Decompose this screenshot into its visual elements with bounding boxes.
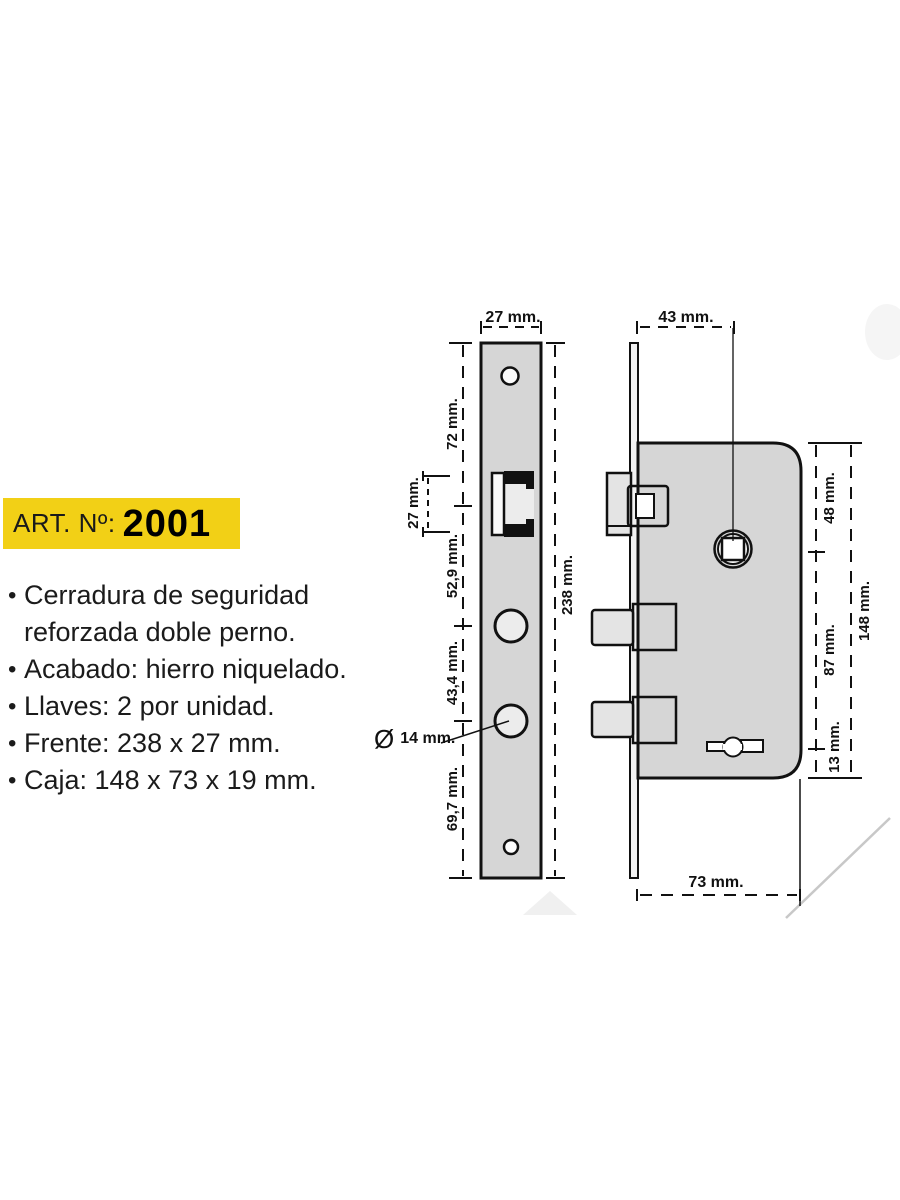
dim-label-front-height: 238 mm. xyxy=(559,555,576,615)
dim-label-latch-to-hole: 52,9 mm. xyxy=(444,534,461,598)
watermark-triangle xyxy=(523,891,577,915)
dim-label-keyhole-to-bottom: 13 mm. xyxy=(826,721,843,773)
product-spec-sheet: ART. Nº: 2001 • Cerradura de seguridad r… xyxy=(0,0,900,1200)
latch-front xyxy=(492,471,534,537)
keyhole-circle-lower xyxy=(495,705,527,737)
keyhole-circle-upper xyxy=(495,610,527,642)
dim-label-top-to-latch: 72 mm. xyxy=(444,398,461,450)
watermark-diagonal xyxy=(786,818,890,918)
dim-label-top-to-spindle: 48 mm. xyxy=(821,472,838,524)
dim-label-front-width: 27 mm. xyxy=(485,309,540,326)
dim-label-hole-to-hole: 43,4 mm. xyxy=(444,641,461,705)
dim-label-latch-height: 27 mm. xyxy=(405,477,422,529)
dim-label-spindle-to-keyhole: 87 mm. xyxy=(821,624,838,676)
watermark-blob xyxy=(865,304,900,360)
side-lock-body xyxy=(638,443,801,778)
dim-label-body-height: 148 mm. xyxy=(856,581,873,641)
dim-latch-height xyxy=(422,471,450,537)
screw-hole-bottom xyxy=(504,840,518,854)
technical-drawing: 27 mm. 72 mm. 52,9 mm. 43,4 mm. 69,7 mm.… xyxy=(0,0,900,1200)
dim-label-body-depth: 43 mm. xyxy=(658,309,713,326)
dim-label-hole-to-bottom: 69,7 mm. xyxy=(444,767,461,831)
dim-label-body-width: 73 mm. xyxy=(688,874,743,891)
screw-hole-top xyxy=(502,368,519,385)
